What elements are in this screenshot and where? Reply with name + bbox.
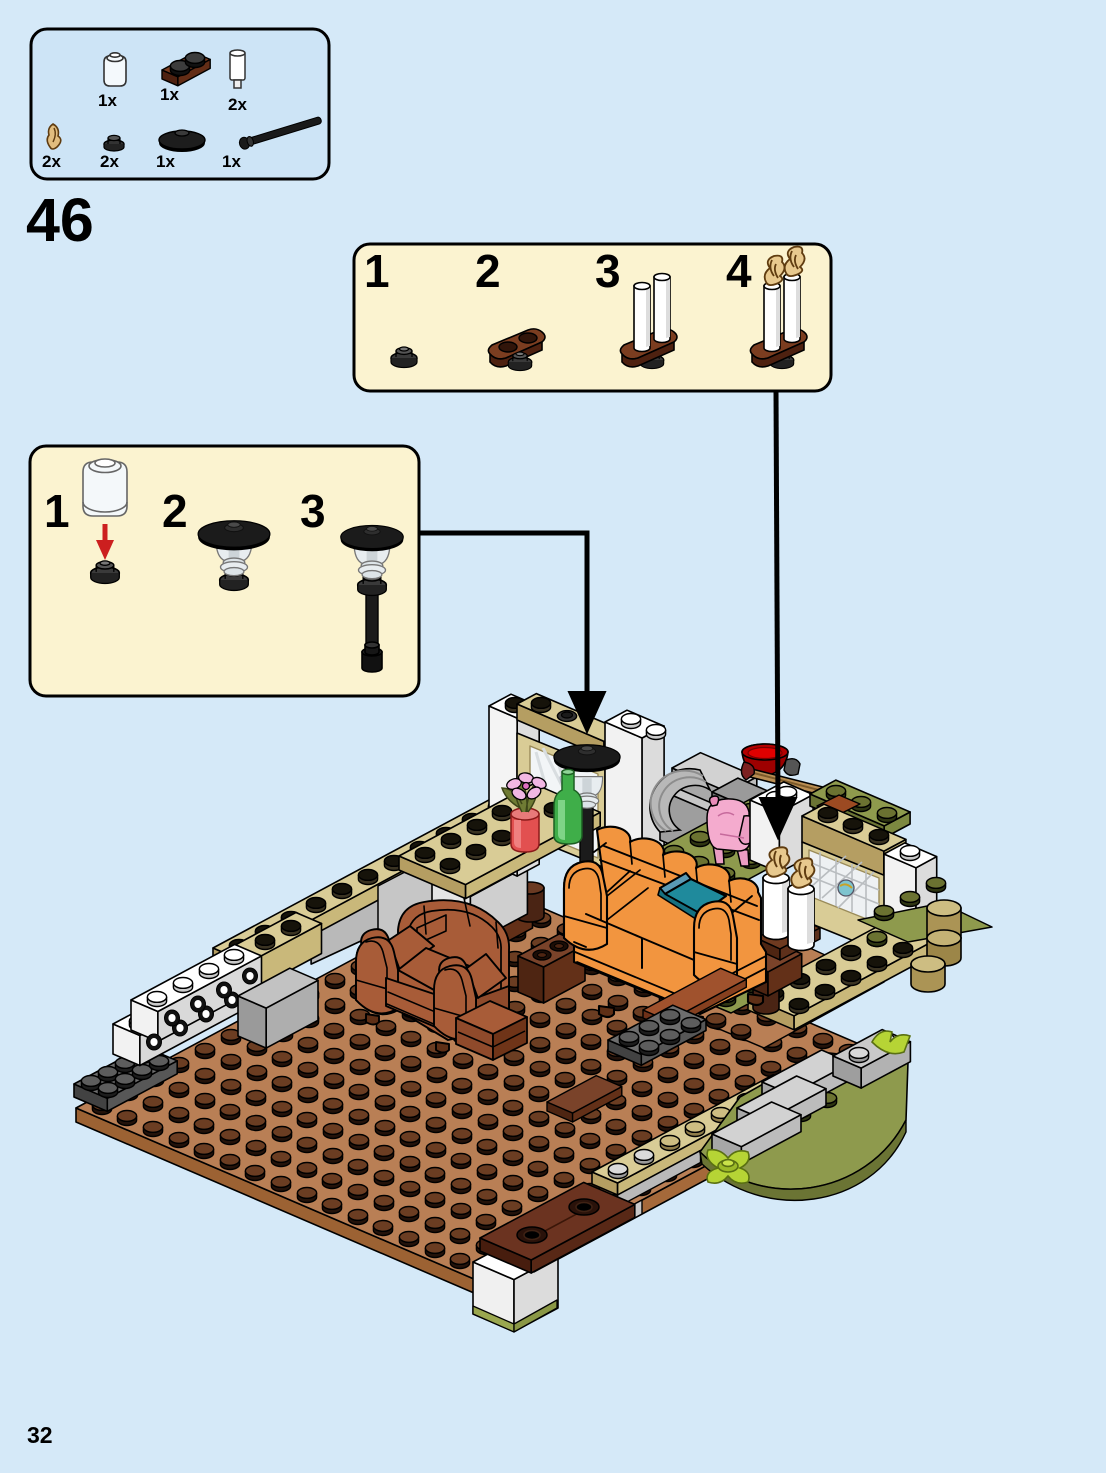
svg-text:2: 2 <box>475 245 501 297</box>
svg-text:2: 2 <box>162 485 188 537</box>
svg-text:1: 1 <box>364 245 390 297</box>
svg-text:3: 3 <box>595 245 621 297</box>
svg-text:2x: 2x <box>42 152 61 171</box>
svg-text:4: 4 <box>726 245 752 297</box>
svg-text:2x: 2x <box>228 95 247 114</box>
svg-text:1x: 1x <box>222 152 241 171</box>
svg-text:1x: 1x <box>156 152 175 171</box>
svg-text:3: 3 <box>300 485 326 537</box>
svg-text:1x: 1x <box>98 91 117 110</box>
svg-text:46: 46 <box>26 186 94 254</box>
svg-text:1x: 1x <box>160 85 179 104</box>
svg-text:1: 1 <box>44 485 70 537</box>
svg-text:32: 32 <box>27 1422 53 1448</box>
svg-text:2x: 2x <box>100 152 119 171</box>
